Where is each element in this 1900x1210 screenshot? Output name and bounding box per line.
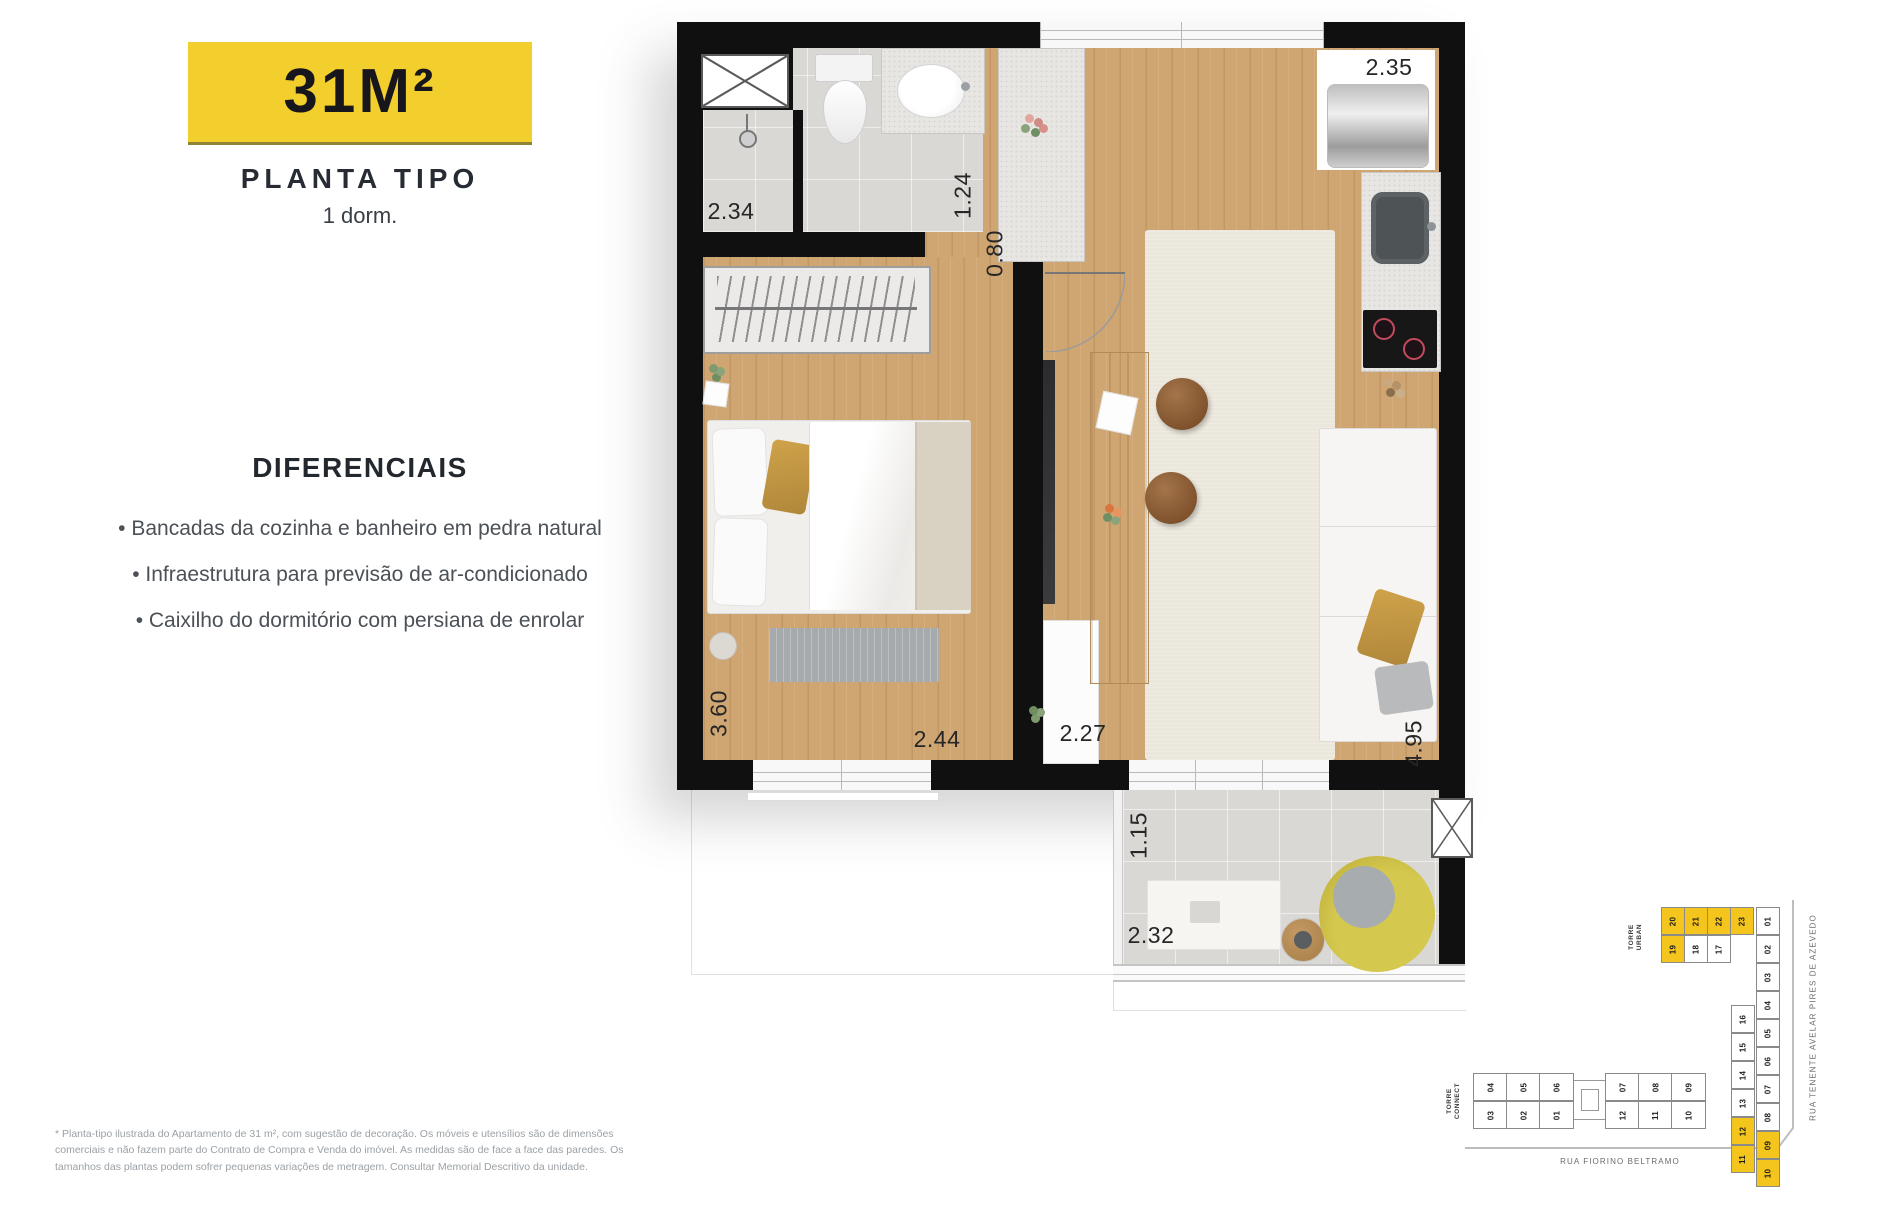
unit-box: 17 <box>1707 935 1731 963</box>
corridor-line <box>1574 1119 1605 1120</box>
plan-type-title: PLANTA TIPO <box>150 163 570 195</box>
window-mullion <box>841 760 842 790</box>
window-sill <box>747 792 939 801</box>
unit-box: 03 <box>1756 963 1780 991</box>
tower-label-line: TORRE <box>1628 902 1636 972</box>
unit-box: 02 <box>1506 1101 1541 1129</box>
unit-box: 02 <box>1756 935 1780 963</box>
shaft-x-icon <box>1431 798 1473 858</box>
site-plan: TORRE URBAN 20 21 22 23 19 18 17 01 02 0… <box>1425 865 1900 1210</box>
side-table <box>709 632 737 660</box>
diferenciais-item: • Caixilho do dormitório com persiana de… <box>60 598 660 644</box>
closet <box>703 266 931 354</box>
table-item <box>1190 901 1220 923</box>
door-arc <box>1045 272 1125 352</box>
unit-box: 01 <box>1539 1101 1574 1129</box>
unit-box: 16 <box>1731 1005 1755 1033</box>
unit-box: 21 <box>1684 907 1708 935</box>
flowers-icon <box>1105 504 1114 513</box>
unit-box: 04 <box>1473 1073 1508 1101</box>
unit-box: 04 <box>1756 991 1780 1019</box>
dim-hall: 0.80 <box>982 224 1009 284</box>
window-mullion <box>1262 760 1263 790</box>
unit-box: 08 <box>1756 1103 1780 1131</box>
unit-box: 08 <box>1638 1073 1673 1101</box>
unit-box: 06 <box>1756 1047 1780 1075</box>
diferenciais-item: • Bancadas da cozinha e banheiro em pedr… <box>60 506 660 552</box>
tower-label-line: CONNECT <box>1454 1066 1462 1136</box>
dorm-count: 1 dorm. <box>150 203 570 229</box>
unit-box: 07 <box>1605 1073 1640 1101</box>
toilet-icon <box>815 54 873 82</box>
unit-box: 09 <box>1756 1131 1780 1159</box>
info-panel: 31M² PLANTA TIPO 1 dorm. <box>150 42 570 229</box>
legal-disclaimer: * Planta-tipo ilustrada do Apartamento d… <box>55 1126 640 1175</box>
burner-icon <box>1403 338 1425 360</box>
window-mullion <box>1195 760 1196 790</box>
unit-box: 10 <box>1671 1101 1706 1129</box>
kitchen-sink-icon <box>1371 192 1429 264</box>
dim-shower: 2.34 <box>701 198 761 225</box>
bed-pillow <box>711 517 768 607</box>
faucet-icon <box>961 82 970 91</box>
sofa-pillow <box>1374 660 1434 715</box>
decor-paper <box>702 380 729 407</box>
plant-icon <box>1029 706 1038 715</box>
tv-panel <box>1043 360 1055 604</box>
balcony-sliding-door <box>1129 760 1329 790</box>
street-name-bottom: RUA FIORINO BELTRAMO <box>1510 1157 1730 1166</box>
dim-bedroom-width: 2.44 <box>907 726 967 753</box>
plant-icon <box>1383 378 1392 387</box>
closet-rod <box>715 307 917 310</box>
wall <box>1013 257 1043 764</box>
unit-box: 23 <box>1730 907 1754 935</box>
diferenciais-item: • Infraestrutura para previsão de ar-con… <box>60 552 660 598</box>
unit-box: 18 <box>1684 935 1708 963</box>
unit-box: 12 <box>1605 1101 1640 1129</box>
dim-balcony-depth: 1.15 <box>1126 806 1153 866</box>
unit-box: 06 <box>1539 1073 1574 1101</box>
bedroom-rug <box>769 628 939 682</box>
cooktop-icon <box>1363 310 1437 368</box>
unit-box: 09 <box>1671 1073 1706 1101</box>
window <box>1040 22 1324 48</box>
diferenciais-title: DIFERENCIAIS <box>60 452 660 484</box>
flowers-icon <box>1025 114 1034 123</box>
street-lines <box>1450 890 1850 1190</box>
diferenciais-section: DIFERENCIAIS • Bancadas da cozinha e ban… <box>60 452 660 644</box>
plant-icon <box>709 364 718 373</box>
balcony-side-glass <box>1113 790 1123 978</box>
floor-plan: 2.34 1.24 0.80 2.35 3.60 2.44 2.27 4.95 … <box>677 22 1487 1022</box>
dim-living-width: 2.27 <box>1053 720 1113 747</box>
corridor-line <box>1574 1080 1605 1081</box>
unit-box: 20 <box>1661 907 1685 935</box>
unit-box: 05 <box>1756 1019 1780 1047</box>
unit-box: 10 <box>1756 1159 1780 1187</box>
torre-connect-label: TORRE CONNECT <box>1446 1066 1464 1136</box>
decor-paper <box>1095 391 1138 436</box>
unit-box: 05 <box>1506 1073 1541 1101</box>
hanging-chair <box>1315 848 1439 978</box>
bedroom-window <box>753 760 931 790</box>
unit-box: 11 <box>1638 1101 1673 1129</box>
area-badge: 31M² <box>188 42 532 145</box>
table-item <box>1294 931 1312 949</box>
tower-label-line: TORRE <box>1446 1066 1454 1136</box>
chair-cushion <box>1333 866 1395 928</box>
unit-box: 12 <box>1731 1117 1755 1145</box>
stool <box>1156 378 1208 430</box>
unit-box: 07 <box>1756 1075 1780 1103</box>
tower-label-line: URBAN <box>1636 902 1644 972</box>
dim-living-depth: 4.95 <box>1401 714 1428 774</box>
window-mullion <box>1181 22 1182 48</box>
dim-bathroom: 1.24 <box>950 166 977 226</box>
dim-bedroom-depth: 3.60 <box>706 684 733 744</box>
apartment-outline: 2.34 1.24 0.80 2.35 3.60 2.44 2.27 4.95 <box>677 22 1465 790</box>
washer-icon <box>1327 84 1429 168</box>
bed-pillow <box>711 427 768 517</box>
unit-box: 22 <box>1707 907 1731 935</box>
unit-box: 13 <box>1731 1089 1755 1117</box>
bathroom-sink-icon <box>897 64 965 118</box>
torre-urban-label: TORRE URBAN <box>1628 902 1646 972</box>
unit-box: 01 <box>1756 907 1780 935</box>
burner-icon <box>1373 318 1395 340</box>
kitchen-island <box>998 48 1085 262</box>
bathroom-door-opening <box>925 232 983 257</box>
floor-projection <box>1113 978 1466 1011</box>
shower-head-icon <box>739 130 757 148</box>
floor-projection <box>691 790 1116 975</box>
unit-box: 03 <box>1473 1101 1508 1129</box>
wall <box>793 110 803 232</box>
street-name-side: RUA TENENTE AVELAR PIRES DE AZEVEDO <box>1809 913 1818 1123</box>
core-box <box>1581 1089 1599 1111</box>
unit-box: 11 <box>1731 1145 1755 1173</box>
unit-box: 14 <box>1731 1061 1755 1089</box>
dim-balcony-width: 2.32 <box>1121 922 1181 949</box>
unit-box: 15 <box>1731 1033 1755 1061</box>
shaft-x-icon <box>701 54 789 108</box>
stool <box>1145 472 1197 524</box>
unit-box: 19 <box>1661 935 1685 963</box>
faucet-icon <box>1427 222 1436 231</box>
blanket <box>915 422 971 610</box>
dim-laundry: 2.35 <box>1359 54 1419 81</box>
